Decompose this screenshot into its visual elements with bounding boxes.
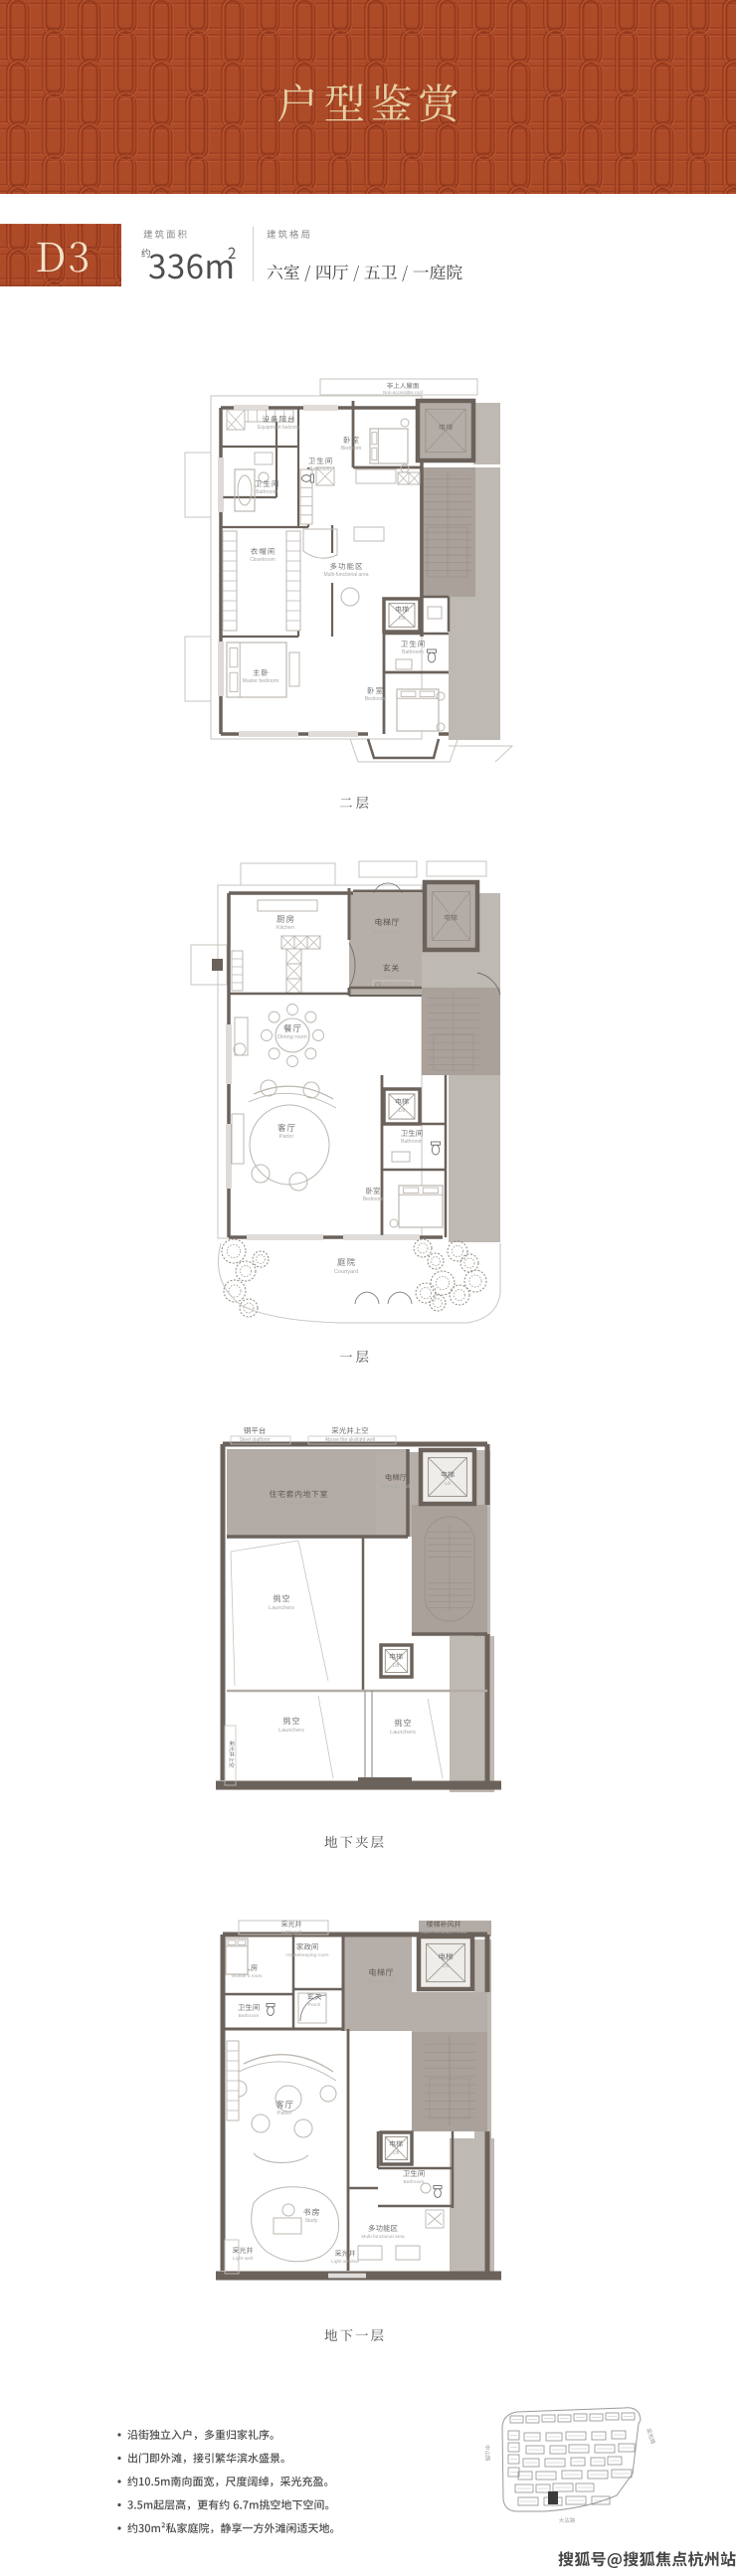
svg-text:Bedroom: Bedroom	[365, 696, 385, 702]
svg-text:Lift: Lift	[399, 1108, 406, 1114]
svg-text:Elevator hall: Elevator hall	[367, 1979, 395, 1985]
svg-text:Lift: Lift	[393, 1663, 400, 1669]
svg-text:Light well: Light well	[281, 1930, 301, 1935]
svg-text:Lift: Lift	[443, 434, 450, 439]
svg-text:Lift: Lift	[399, 616, 406, 622]
svg-text:Launchers: Launchers	[390, 1730, 416, 1736]
svg-text:Steel platform: Steel platform	[240, 1437, 271, 1443]
svg-text:Multi-functional area: Multi-functional area	[361, 2234, 405, 2240]
svg-text:Porch: Porch	[385, 975, 398, 981]
svg-text:Bathroom: Bathroom	[239, 2013, 260, 2019]
svg-text:Above the skylight well: Above the skylight well	[325, 1437, 376, 1443]
svg-text:Bathroom: Bathroom	[309, 466, 331, 472]
svg-text:Launchers: Launchers	[278, 1728, 304, 1734]
svg-text:Non-accessible roof: Non-accessible roof	[383, 390, 424, 395]
svg-text:Elevator hall: Elevator hall	[382, 1484, 410, 1490]
svg-text:Lift: Lift	[393, 2150, 400, 2156]
svg-text:Porch: Porch	[308, 2002, 321, 2008]
svg-text:Bathroom: Bathroom	[401, 1139, 423, 1145]
svg-text:Master bedroom: Master bedroom	[243, 678, 278, 684]
svg-text:Launchers: Launchers	[269, 1605, 294, 1611]
svg-text:Study: Study	[305, 2218, 318, 2224]
svg-text:Bedroom: Bedroom	[363, 1196, 383, 1202]
svg-text:Residential Basement: Residential Basement	[275, 1501, 323, 1507]
svg-text:Courtyard: Courtyard	[334, 1269, 358, 1275]
svg-text:Bedroom: Bedroom	[341, 446, 361, 452]
svg-text:Equipment balcony: Equipment balcony	[258, 425, 300, 431]
svg-text:Bathroom: Bathroom	[256, 489, 277, 495]
svg-text:Lift: Lift	[443, 1963, 450, 1969]
svg-text:Bathroom: Bathroom	[404, 2179, 425, 2185]
svg-text:Multi-functional area: Multi-functional area	[323, 572, 368, 578]
svg-text:Housekeeping room: Housekeeping room	[286, 1952, 329, 1958]
svg-text:Kitchen: Kitchen	[276, 925, 294, 931]
svg-text:Light well: Light well	[233, 2256, 253, 2262]
svg-text:Dining room: Dining room	[277, 1034, 307, 1040]
svg-text:Bathroom: Bathroom	[402, 649, 424, 655]
svg-text:Elevator hall: Elevator hall	[374, 929, 400, 935]
svg-text:Light window: Light window	[331, 2259, 359, 2265]
svg-text:Lift: Lift	[448, 924, 455, 929]
svg-text:Closetroom: Closetroom	[250, 557, 276, 563]
svg-text:Lift: Lift	[445, 1481, 452, 1486]
svg-text:Parlor: Parlor	[279, 1134, 294, 1140]
